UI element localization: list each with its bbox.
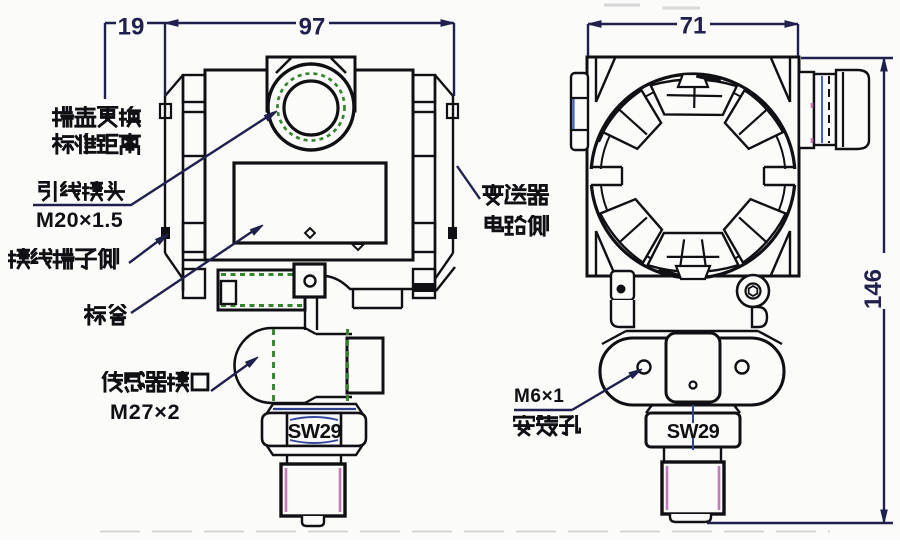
svg-text:M20×1.5: M20×1.5: [36, 208, 123, 232]
svg-text:SW29: SW29: [288, 420, 342, 443]
svg-text:19: 19: [118, 14, 145, 41]
svg-text:97: 97: [299, 14, 326, 41]
svg-text:M6×1: M6×1: [514, 386, 564, 407]
svg-text:M27×2: M27×2: [110, 400, 180, 424]
svg-text:146: 146: [860, 269, 887, 309]
svg-text:SW29: SW29: [667, 421, 720, 443]
svg-text:71: 71: [680, 13, 707, 40]
